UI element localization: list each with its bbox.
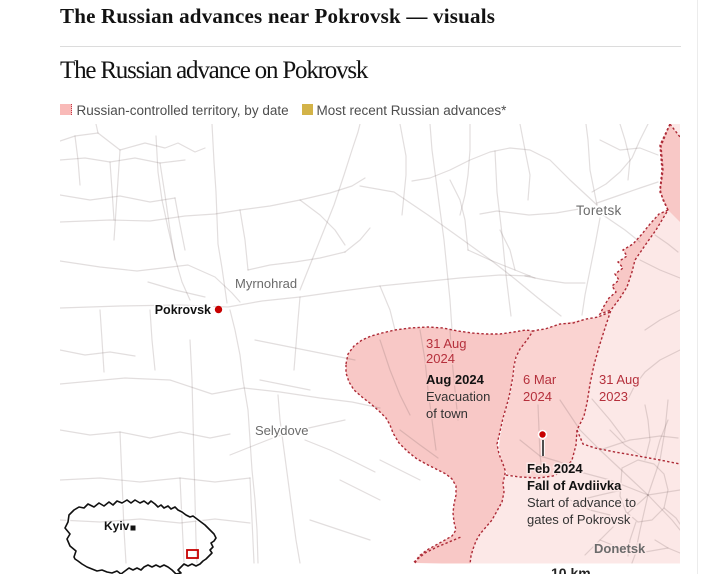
svg-text:Kyiv: Kyiv — [104, 519, 130, 533]
svg-text:Pokrovsk: Pokrovsk — [155, 303, 211, 317]
svg-text:Toretsk: Toretsk — [576, 203, 622, 218]
svg-text:2024: 2024 — [426, 351, 455, 366]
svg-text:Myrnohrad: Myrnohrad — [235, 276, 297, 291]
svg-text:31 Aug: 31 Aug — [599, 372, 640, 387]
svg-text:gates of Pokrovsk: gates of Pokrovsk — [527, 512, 631, 527]
svg-text:Aug 2024: Aug 2024 — [426, 372, 485, 387]
svg-text:2024: 2024 — [523, 389, 552, 404]
svg-text:Donetsk: Donetsk — [594, 541, 646, 556]
svg-text:31 Aug: 31 Aug — [426, 336, 467, 351]
svg-text:of town: of town — [426, 406, 468, 421]
svg-text:Start of advance to: Start of advance to — [527, 495, 636, 510]
svg-text:Feb 2024: Feb 2024 — [527, 461, 583, 476]
svg-text:Selydove: Selydove — [255, 423, 308, 438]
svg-text:Fall of Avdiivka: Fall of Avdiivka — [527, 478, 622, 493]
svg-text:6 Mar: 6 Mar — [523, 372, 557, 387]
svg-text:Evacuation: Evacuation — [426, 389, 490, 404]
svg-text:2023: 2023 — [599, 389, 628, 404]
